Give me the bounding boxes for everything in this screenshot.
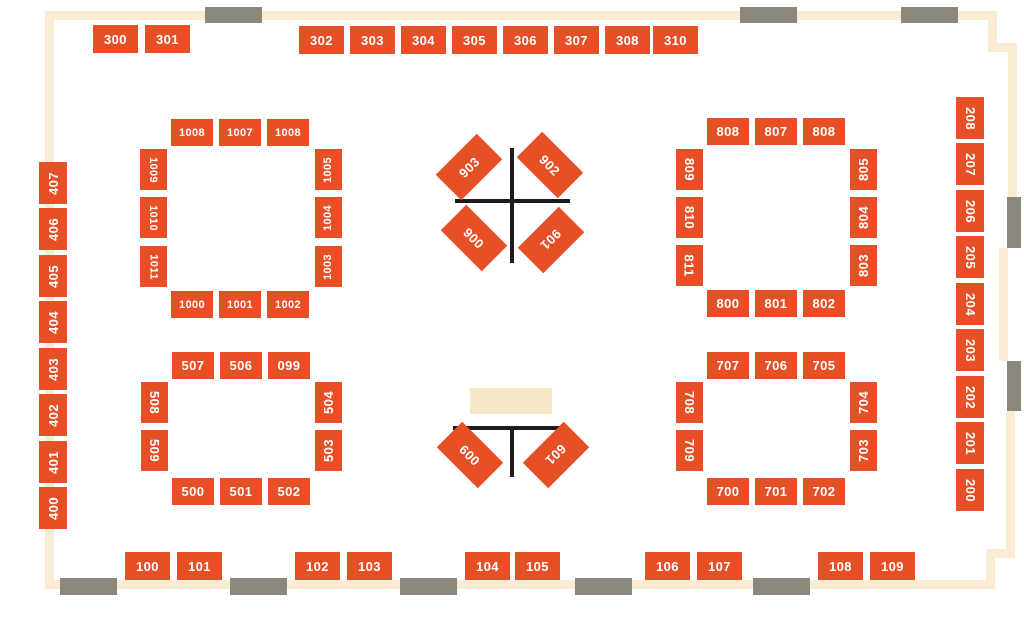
booth-label: 100 (136, 559, 159, 574)
booth-label: 205 (962, 246, 977, 269)
booth-label: 207 (962, 153, 977, 176)
booth-label: 307 (565, 33, 588, 48)
booth-1003[interactable]: 1003 (315, 246, 342, 287)
booth-807[interactable]: 807 (755, 118, 797, 145)
booth-label: 509 (147, 439, 162, 462)
booth-label: 302 (310, 33, 333, 48)
booth-label: 208 (962, 107, 977, 130)
booth-label: 203 (962, 339, 977, 362)
booth-407[interactable]: 407 (39, 162, 67, 204)
booth-label: 401 (45, 451, 60, 474)
booth-700[interactable]: 700 (707, 478, 749, 505)
booth-label: 400 (45, 497, 60, 520)
booth-label: 808 (717, 124, 740, 139)
booth-804[interactable]: 804 (850, 197, 877, 238)
booth-103[interactable]: 103 (347, 552, 392, 580)
booth-label: 500 (182, 484, 205, 499)
booth-label: 507 (182, 358, 205, 373)
divider-line-1 (455, 199, 570, 203)
wall-segment-0 (45, 11, 993, 20)
booth-label: 708 (682, 391, 697, 414)
booth-704[interactable]: 704 (850, 382, 877, 423)
booth-label: 508 (147, 391, 162, 414)
booth-label: 1008 (275, 127, 301, 139)
booth-306[interactable]: 306 (503, 26, 548, 54)
booth-301[interactable]: 301 (145, 25, 190, 53)
booth-107[interactable]: 107 (697, 552, 742, 580)
booth-label: 1007 (227, 127, 253, 139)
booth-label: 201 (962, 432, 977, 455)
booth-label: 300 (104, 32, 127, 47)
booth-202[interactable]: 202 (956, 376, 984, 418)
booth-200[interactable]: 200 (956, 469, 984, 511)
booth-502[interactable]: 502 (268, 478, 310, 505)
booth-701[interactable]: 701 (755, 478, 797, 505)
booth-201[interactable]: 201 (956, 422, 984, 464)
booth-709[interactable]: 709 (676, 430, 703, 471)
door-opening-1 (740, 7, 797, 23)
booth-1000[interactable]: 1000 (171, 291, 213, 318)
booth-508[interactable]: 508 (141, 382, 168, 423)
booth-109[interactable]: 109 (870, 552, 915, 580)
wall-segment-9 (986, 549, 995, 589)
booth-label: 901 (538, 227, 565, 254)
booth-1008[interactable]: 1008 (171, 119, 213, 146)
booth-label: 1005 (322, 156, 334, 182)
booth-label: 903 (456, 154, 483, 181)
booth-105[interactable]: 105 (515, 552, 560, 580)
booth-707[interactable]: 707 (707, 352, 749, 379)
booth-label: 303 (361, 33, 384, 48)
stage-block (470, 388, 552, 414)
booth-307[interactable]: 307 (554, 26, 599, 54)
booth-label: 705 (813, 358, 836, 373)
booth-label: 1010 (147, 204, 159, 230)
booth-label: 103 (358, 559, 381, 574)
booth-501[interactable]: 501 (220, 478, 262, 505)
booth-808[interactable]: 808 (707, 118, 749, 145)
booth-203[interactable]: 203 (956, 329, 984, 371)
booth-101[interactable]: 101 (177, 552, 222, 580)
door-opening-0 (205, 7, 262, 23)
divider-line-3 (510, 426, 514, 477)
booth-label: 404 (45, 311, 60, 334)
booth-205[interactable]: 205 (956, 236, 984, 278)
booth-label: 101 (188, 559, 211, 574)
wall-segment-2 (45, 580, 995, 589)
booth-808[interactable]: 808 (803, 118, 845, 145)
booth-100[interactable]: 100 (125, 552, 170, 580)
booth-label: 802 (813, 296, 836, 311)
booth-label: 099 (278, 358, 301, 373)
door-opening-2 (901, 7, 958, 23)
booth-108[interactable]: 108 (818, 552, 863, 580)
booth-102[interactable]: 102 (295, 552, 340, 580)
divider-line-0 (510, 148, 514, 263)
booth-708[interactable]: 708 (676, 382, 703, 423)
booth-1004[interactable]: 1004 (315, 197, 342, 238)
booth-label: 503 (321, 439, 336, 462)
booth-805[interactable]: 805 (850, 149, 877, 190)
booth-099[interactable]: 099 (268, 352, 310, 379)
booth-600[interactable]: 600 (437, 422, 503, 488)
booth-106[interactable]: 106 (645, 552, 690, 580)
booth-1008[interactable]: 1008 (267, 119, 309, 146)
booth-802[interactable]: 802 (803, 290, 845, 317)
booth-label: 804 (856, 206, 871, 229)
booth-1009[interactable]: 1009 (140, 149, 167, 190)
booth-310[interactable]: 310 (653, 26, 698, 54)
booth-label: 1009 (147, 156, 159, 182)
booth-811[interactable]: 811 (676, 245, 703, 286)
booth-label: 502 (278, 484, 301, 499)
booth-label: 104 (476, 559, 499, 574)
booth-500[interactable]: 500 (172, 478, 214, 505)
booth-label: 601 (543, 442, 570, 469)
booth-801[interactable]: 801 (755, 290, 797, 317)
booth-810[interactable]: 810 (676, 197, 703, 238)
booth-809[interactable]: 809 (676, 149, 703, 190)
booth-label: 506 (230, 358, 253, 373)
booth-400[interactable]: 400 (39, 487, 67, 529)
booth-label: 308 (616, 33, 639, 48)
booth-903[interactable]: 903 (436, 134, 502, 200)
door-opening-8 (1007, 197, 1021, 248)
door-opening-4 (230, 578, 287, 595)
booth-label: 900 (461, 225, 488, 252)
booth-label: 704 (856, 391, 871, 414)
booth-1007[interactable]: 1007 (219, 119, 261, 146)
booth-1005[interactable]: 1005 (315, 149, 342, 190)
booth-label: 701 (765, 484, 788, 499)
booth-402[interactable]: 402 (39, 394, 67, 436)
booth-1001[interactable]: 1001 (219, 291, 261, 318)
booth-507[interactable]: 507 (172, 352, 214, 379)
booth-label: 107 (708, 559, 731, 574)
booth-label: 810 (682, 206, 697, 229)
booth-label: 800 (717, 296, 740, 311)
booth-900[interactable]: 900 (441, 205, 507, 271)
booth-1002[interactable]: 1002 (267, 291, 309, 318)
booth-800[interactable]: 800 (707, 290, 749, 317)
booth-207[interactable]: 207 (956, 143, 984, 185)
door-opening-6 (575, 578, 632, 595)
booth-label: 202 (962, 386, 977, 409)
booth-label: 805 (856, 158, 871, 181)
booth-label: 1002 (275, 299, 301, 311)
booth-304[interactable]: 304 (401, 26, 446, 54)
booth-label: 811 (682, 254, 697, 276)
booth-label: 706 (765, 358, 788, 373)
booth-406[interactable]: 406 (39, 208, 67, 250)
booth-label: 808 (813, 124, 836, 139)
booth-label: 306 (514, 33, 537, 48)
door-opening-5 (400, 578, 457, 595)
booth-label: 803 (856, 254, 871, 277)
door-opening-3 (60, 578, 117, 595)
booth-label: 1011 (148, 254, 160, 279)
booth-label: 108 (829, 559, 852, 574)
booth-label: 402 (45, 404, 60, 427)
booth-803[interactable]: 803 (850, 245, 877, 286)
booth-label: 709 (682, 439, 697, 462)
door-opening-7 (753, 578, 810, 595)
booth-label: 403 (45, 358, 60, 381)
booth-208[interactable]: 208 (956, 97, 984, 139)
booth-label: 600 (457, 442, 484, 469)
booth-label: 206 (962, 200, 977, 223)
booth-601[interactable]: 601 (523, 422, 589, 488)
booth-label: 106 (656, 559, 679, 574)
booth-label: 700 (717, 484, 740, 499)
booth-902[interactable]: 902 (517, 132, 583, 198)
booth-104[interactable]: 104 (465, 552, 510, 580)
booth-706[interactable]: 706 (755, 352, 797, 379)
booth-label: 902 (537, 152, 564, 179)
booth-901[interactable]: 901 (518, 207, 584, 273)
booth-label: 707 (717, 358, 740, 373)
wall-segment-5 (1008, 43, 1017, 197)
booth-label: 109 (881, 559, 904, 574)
booth-308[interactable]: 308 (605, 26, 650, 54)
booth-label: 501 (230, 484, 253, 499)
booth-label: 1003 (322, 253, 334, 279)
booth-705[interactable]: 705 (803, 352, 845, 379)
booth-label: 807 (765, 124, 788, 139)
door-opening-9 (1007, 361, 1021, 411)
booth-label: 200 (962, 479, 977, 502)
booth-label: 102 (306, 559, 329, 574)
booth-label: 809 (682, 158, 697, 181)
booth-504[interactable]: 504 (315, 382, 342, 423)
booth-401[interactable]: 401 (39, 441, 67, 483)
wall-segment-6 (999, 248, 1008, 361)
booth-702[interactable]: 702 (803, 478, 845, 505)
booth-305[interactable]: 305 (452, 26, 497, 54)
booth-label: 801 (765, 296, 788, 311)
booth-703[interactable]: 703 (850, 430, 877, 471)
booth-label: 305 (463, 33, 486, 48)
booth-label: 702 (813, 484, 836, 499)
wall-segment-7 (1006, 411, 1015, 551)
booth-label: 105 (526, 559, 549, 574)
booth-302[interactable]: 302 (299, 26, 344, 54)
booth-label: 407 (45, 172, 60, 195)
booth-206[interactable]: 206 (956, 190, 984, 232)
booth-506[interactable]: 506 (220, 352, 262, 379)
booth-label: 504 (321, 391, 336, 414)
booth-1010[interactable]: 1010 (140, 197, 167, 238)
booth-503[interactable]: 503 (315, 430, 342, 471)
booth-303[interactable]: 303 (350, 26, 395, 54)
booth-label: 204 (962, 293, 977, 316)
booth-label: 703 (856, 439, 871, 462)
booth-label: 1008 (179, 127, 205, 139)
booth-300[interactable]: 300 (93, 25, 138, 53)
booth-label: 405 (45, 265, 60, 288)
booth-label: 406 (45, 218, 60, 241)
booth-label: 1004 (322, 204, 334, 230)
booth-405[interactable]: 405 (39, 255, 67, 297)
booth-509[interactable]: 509 (141, 430, 168, 471)
booth-404[interactable]: 404 (39, 301, 67, 343)
booth-403[interactable]: 403 (39, 348, 67, 390)
booth-label: 1000 (179, 299, 205, 311)
booth-label: 1001 (227, 299, 253, 311)
booth-label: 304 (412, 33, 435, 48)
exhibit-floor-plan: 3003013023033043053063073083104074064054… (0, 0, 1024, 622)
booth-1011[interactable]: 1011 (140, 246, 167, 287)
booth-label: 301 (156, 32, 179, 47)
booth-label: 310 (664, 33, 687, 48)
booth-204[interactable]: 204 (956, 283, 984, 325)
